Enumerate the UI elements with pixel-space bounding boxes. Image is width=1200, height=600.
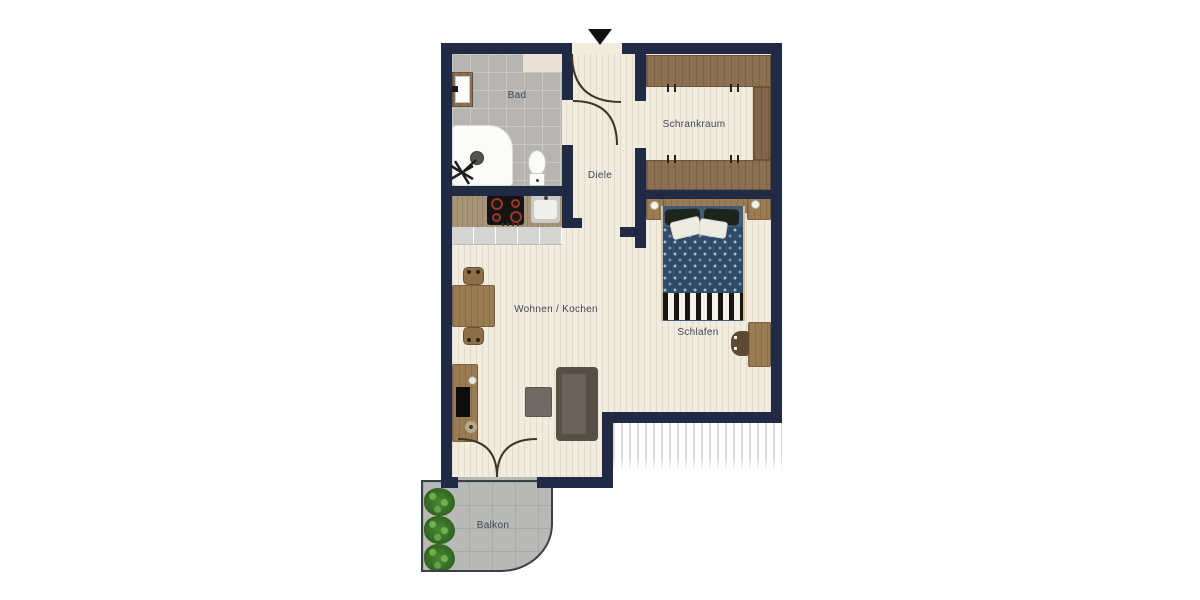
bathroom-shelf-area: [523, 54, 562, 72]
kitchen-base-cabinets: [452, 227, 562, 245]
wall: [441, 43, 452, 488]
wardrobe-handle: [737, 84, 739, 92]
plant-icon: [424, 544, 455, 572]
wall: [620, 227, 635, 237]
dining-chair: [463, 267, 484, 285]
burner-icon: [492, 213, 501, 222]
room-label-schrankraum: Schrankraum: [663, 120, 726, 130]
decor-bowl-icon: [468, 376, 477, 385]
wardrobe-bottom: [646, 160, 771, 190]
room-label-bad: Bad: [508, 91, 527, 101]
burner-icon: [511, 199, 520, 208]
wall: [441, 43, 572, 54]
desk-chair-armrest: [734, 347, 737, 350]
bedside-lamp-icon: [751, 200, 760, 209]
wall: [537, 477, 613, 488]
wall: [602, 412, 782, 423]
room-label-diele: Diele: [588, 171, 612, 181]
wall: [441, 186, 573, 196]
room-label-schlafen: Schlafen: [677, 328, 718, 338]
coffee-table: [525, 387, 552, 417]
sink-faucet-icon: [544, 196, 548, 200]
wall: [562, 218, 582, 228]
decor-plant-icon: [465, 421, 477, 433]
wardrobe-handle: [674, 155, 676, 163]
burner-icon: [491, 198, 503, 210]
wardrobe-handle: [730, 84, 732, 92]
desk: [748, 322, 771, 367]
cabinet-symbol-icon: [452, 86, 458, 92]
cooktop-controls: [502, 223, 522, 226]
plant-icon: [424, 516, 455, 544]
wardrobe-right: [753, 87, 771, 160]
wardrobe-handle: [667, 155, 669, 163]
tv: [456, 387, 470, 417]
bed-foot-blanket: [663, 293, 743, 320]
wall: [441, 477, 458, 488]
wall: [562, 54, 573, 100]
plant-icon: [424, 488, 455, 516]
shower-drain: [470, 151, 484, 165]
wardrobe-handle: [667, 84, 669, 92]
desk-chair-armrest: [734, 336, 737, 339]
entrance-arrow-icon: [588, 29, 612, 45]
wall: [771, 43, 782, 423]
wardrobe-handle: [730, 155, 732, 163]
room-label-balkon: Balkon: [477, 521, 509, 531]
sink-basin: [534, 200, 557, 219]
floor-plan: Bad Schrankraum Diele Wohnen / Kochen Sc…: [0, 0, 1200, 600]
sofa-seat: [562, 374, 586, 434]
wall: [635, 190, 771, 199]
room-label-wohnen-kochen: Wohnen / Kochen: [514, 305, 598, 315]
bedside-lamp-icon: [650, 201, 659, 210]
dining-chair: [463, 327, 484, 345]
wall: [635, 54, 646, 101]
toilet-flush-dot: [536, 179, 539, 182]
roof-hatch-area: [613, 423, 782, 471]
wardrobe-handle: [674, 84, 676, 92]
burner-icon: [510, 211, 522, 223]
wardrobe-top: [646, 55, 771, 87]
toilet-bowl: [528, 150, 546, 175]
desk-chair: [731, 331, 749, 356]
wall: [622, 43, 782, 54]
dining-table: [452, 285, 495, 327]
wardrobe-handle: [737, 155, 739, 163]
